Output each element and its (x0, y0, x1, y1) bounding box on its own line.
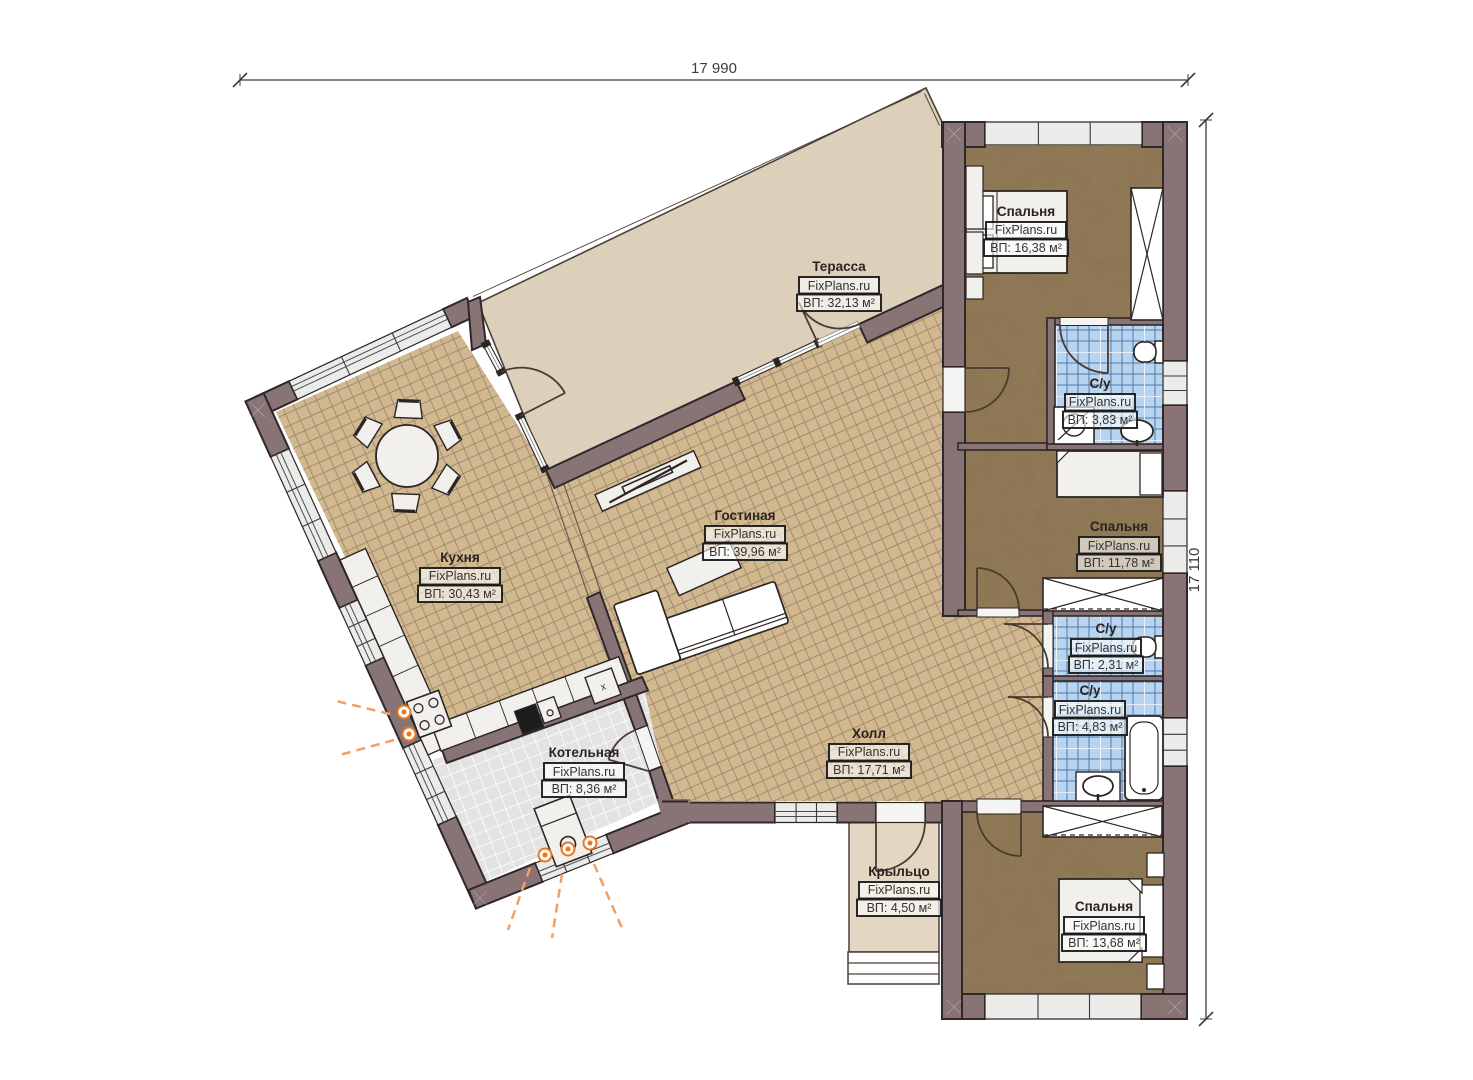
svg-text:Котельная: Котельная (549, 745, 620, 760)
svg-text:FixPlans.ru: FixPlans.ru (1073, 919, 1136, 933)
svg-text:ВП: 4,83 м²: ВП: 4,83 м² (1058, 720, 1123, 734)
svg-text:Холл: Холл (852, 726, 886, 741)
svg-text:FixPlans.ru: FixPlans.ru (868, 883, 931, 897)
svg-text:FixPlans.ru: FixPlans.ru (808, 279, 871, 293)
svg-text:17 990: 17 990 (691, 60, 737, 77)
svg-text:ВП: 17,71 м²: ВП: 17,71 м² (833, 763, 905, 777)
svg-text:Гостиная: Гостиная (714, 508, 775, 523)
svg-text:ВП: 30,43 м²: ВП: 30,43 м² (424, 587, 496, 601)
svg-text:Крыльцо: Крыльцо (868, 864, 929, 879)
svg-text:ВП: 8,36 м²: ВП: 8,36 м² (552, 782, 617, 796)
svg-text:Кухня: Кухня (440, 550, 479, 565)
svg-text:ВП: 32,13 м²: ВП: 32,13 м² (803, 296, 875, 310)
svg-text:FixPlans.ru: FixPlans.ru (838, 745, 901, 759)
svg-text:FixPlans.ru: FixPlans.ru (553, 765, 616, 779)
svg-text:Спальня: Спальня (1075, 899, 1133, 914)
svg-text:ВП: 39,96 м²: ВП: 39,96 м² (709, 545, 781, 559)
svg-text:Спальня: Спальня (1090, 519, 1148, 534)
svg-text:ВП: 16,38 м²: ВП: 16,38 м² (990, 241, 1062, 255)
svg-text:ВП: 3,83 м²: ВП: 3,83 м² (1068, 413, 1133, 427)
svg-text:FixPlans.ru: FixPlans.ru (1088, 539, 1151, 553)
svg-text:FixPlans.ru: FixPlans.ru (1069, 395, 1132, 409)
svg-text:FixPlans.ru: FixPlans.ru (714, 527, 777, 541)
svg-text:ВП: 2,31 м²: ВП: 2,31 м² (1074, 658, 1139, 672)
svg-text:FixPlans.ru: FixPlans.ru (1059, 703, 1122, 717)
svg-text:FixPlans.ru: FixPlans.ru (995, 223, 1058, 237)
svg-text:ВП: 13,68 м²: ВП: 13,68 м² (1068, 936, 1140, 950)
svg-text:17 110: 17 110 (1186, 548, 1203, 593)
svg-text:С/у: С/у (1095, 621, 1117, 636)
svg-text:FixPlans.ru: FixPlans.ru (429, 569, 492, 583)
svg-text:FixPlans.ru: FixPlans.ru (1075, 641, 1138, 655)
svg-text:ВП: 11,78 м²: ВП: 11,78 м² (1084, 556, 1155, 570)
svg-text:ВП: 4,50 м²: ВП: 4,50 м² (867, 901, 932, 915)
svg-text:С/у: С/у (1089, 376, 1111, 391)
svg-text:Терасса: Терасса (812, 259, 866, 274)
svg-text:С/у: С/у (1079, 683, 1101, 698)
svg-text:Спальня: Спальня (997, 204, 1055, 219)
